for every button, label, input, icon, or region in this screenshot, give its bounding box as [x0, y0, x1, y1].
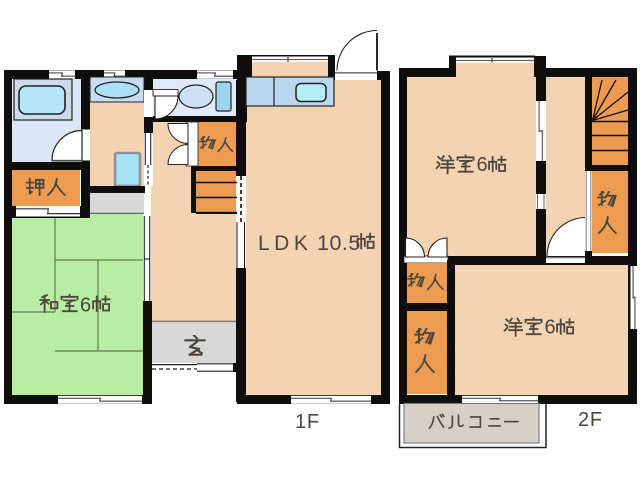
svg-text:1F: 1F	[295, 411, 320, 433]
svg-text:LDK: LDK	[258, 232, 312, 255]
svg-text:10.5: 10.5	[317, 231, 361, 255]
svg-text:6: 6	[545, 317, 556, 339]
svg-text:2F: 2F	[578, 409, 603, 431]
svg-text:6: 6	[477, 154, 488, 176]
svg-text:6: 6	[80, 295, 91, 317]
